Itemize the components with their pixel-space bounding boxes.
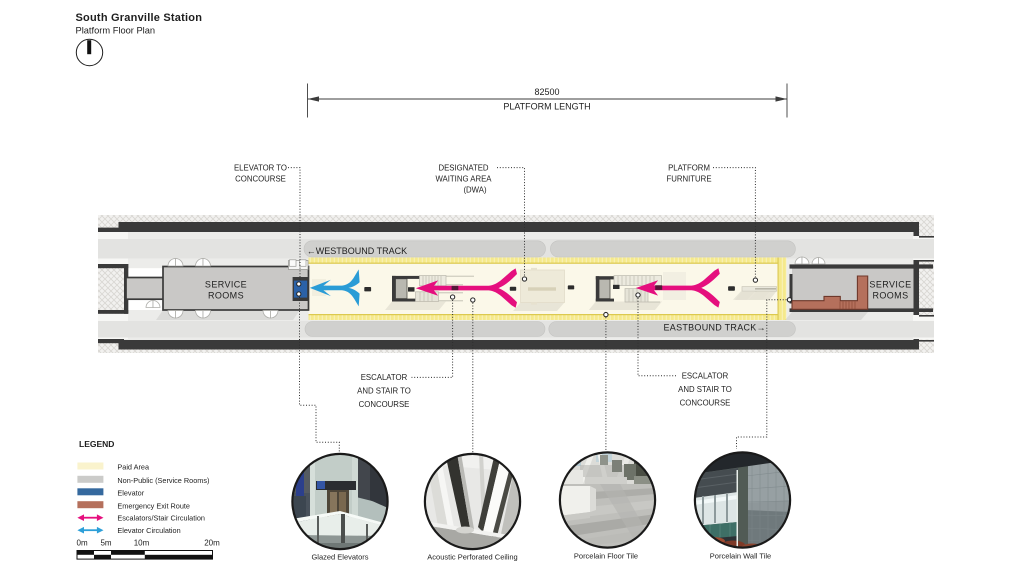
svg-text:Porcelain Wall Tile: Porcelain Wall Tile [710,552,771,561]
svg-text:PLATFORM LENGTH: PLATFORM LENGTH [503,102,590,112]
svg-text:Non-Public (Service Rooms): Non-Public (Service Rooms) [117,476,209,485]
svg-text:EASTBOUND TRACK→: EASTBOUND TRACK→ [664,323,766,333]
svg-text:SERVICE: SERVICE [205,279,247,289]
svg-text:Porcelain Floor Tile: Porcelain Floor Tile [574,552,638,561]
svg-text:DESIGNATED: DESIGNATED [438,163,488,172]
svg-text:82500: 82500 [534,87,559,97]
svg-text:CONCOURSE: CONCOURSE [235,175,286,184]
svg-text:Escalators/Stair Circulation: Escalators/Stair Circulation [117,514,205,523]
svg-text:0m: 0m [77,539,88,548]
svg-text:ESCALATOR: ESCALATOR [361,373,408,382]
svg-text:Paid Area: Paid Area [117,463,150,472]
svg-text:CONCOURSE: CONCOURSE [359,400,410,409]
svg-text:←WESTBOUND TRACK: ←WESTBOUND TRACK [307,246,407,256]
svg-text:Platform Floor Plan: Platform Floor Plan [76,26,156,36]
svg-text:South Granville Station: South Granville Station [76,12,203,24]
svg-text:5m: 5m [100,539,111,548]
svg-text:SERVICE: SERVICE [869,280,911,290]
svg-text:AND STAIR TO: AND STAIR TO [678,385,732,394]
svg-text:(DWA): (DWA) [463,186,486,195]
svg-text:WAITING AREA: WAITING AREA [435,175,492,184]
svg-text:10m: 10m [134,539,150,548]
svg-text:ROOMS: ROOMS [872,291,908,301]
svg-text:ROOMS: ROOMS [208,290,244,300]
svg-text:ESCALATOR: ESCALATOR [682,372,729,381]
svg-text:CONCOURSE: CONCOURSE [680,399,731,408]
svg-text:20m: 20m [204,539,220,548]
svg-text:PLATFORM: PLATFORM [668,163,710,172]
svg-text:Elevator Circulation: Elevator Circulation [117,526,180,535]
svg-text:Acoustic Perforated Ceiling: Acoustic Perforated Ceiling [427,553,517,562]
svg-text:LEGEND: LEGEND [79,439,114,449]
svg-text:ELEVATOR TO: ELEVATOR TO [234,163,287,172]
svg-text:FURNITURE: FURNITURE [666,175,711,184]
svg-text:Elevator: Elevator [117,489,144,498]
svg-text:Glazed Elevators: Glazed Elevators [311,553,368,562]
svg-text:AND STAIR TO: AND STAIR TO [357,387,411,396]
svg-text:Emergency Exit Route: Emergency Exit Route [117,501,190,510]
